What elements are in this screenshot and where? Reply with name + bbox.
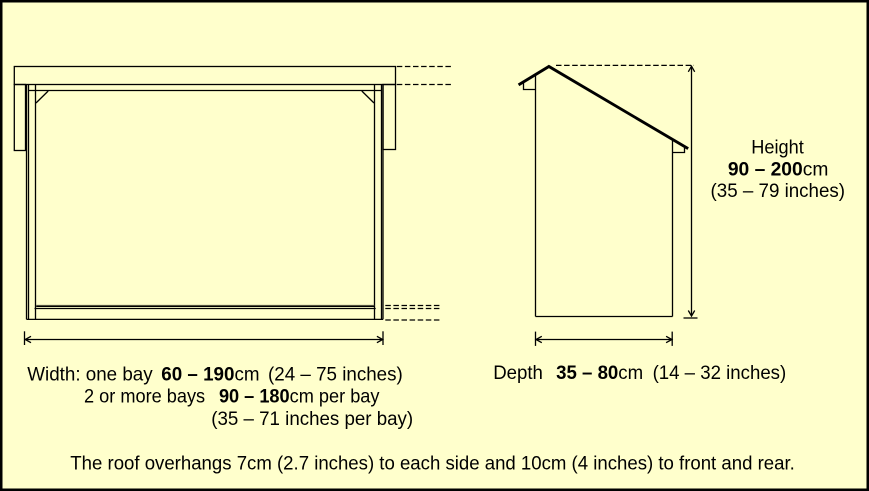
svg-text:Width: one bay 60 – 190cm (24: Width: one bay 60 – 190cm (24 – 75 inche…	[27, 364, 403, 385]
svg-text:90 – 200cm: 90 – 200cm	[728, 159, 829, 180]
svg-text:Height: Height	[751, 138, 804, 159]
svg-text:(35 – 71 inches per bay): (35 – 71 inches per bay)	[211, 409, 413, 430]
svg-text:(35 – 79 inches): (35 – 79 inches)	[711, 181, 846, 202]
svg-text:2 or more bays 90 – 180cm per: 2 or more bays 90 – 180cm per bay	[84, 386, 380, 407]
svg-text:Depth 35 – 80cm (14 – 32 inche: Depth 35 – 80cm (14 – 32 inches)	[493, 363, 786, 384]
svg-text:The roof overhangs 7cm (2.7 in: The roof overhangs 7cm (2.7 inches) to e…	[70, 454, 795, 475]
